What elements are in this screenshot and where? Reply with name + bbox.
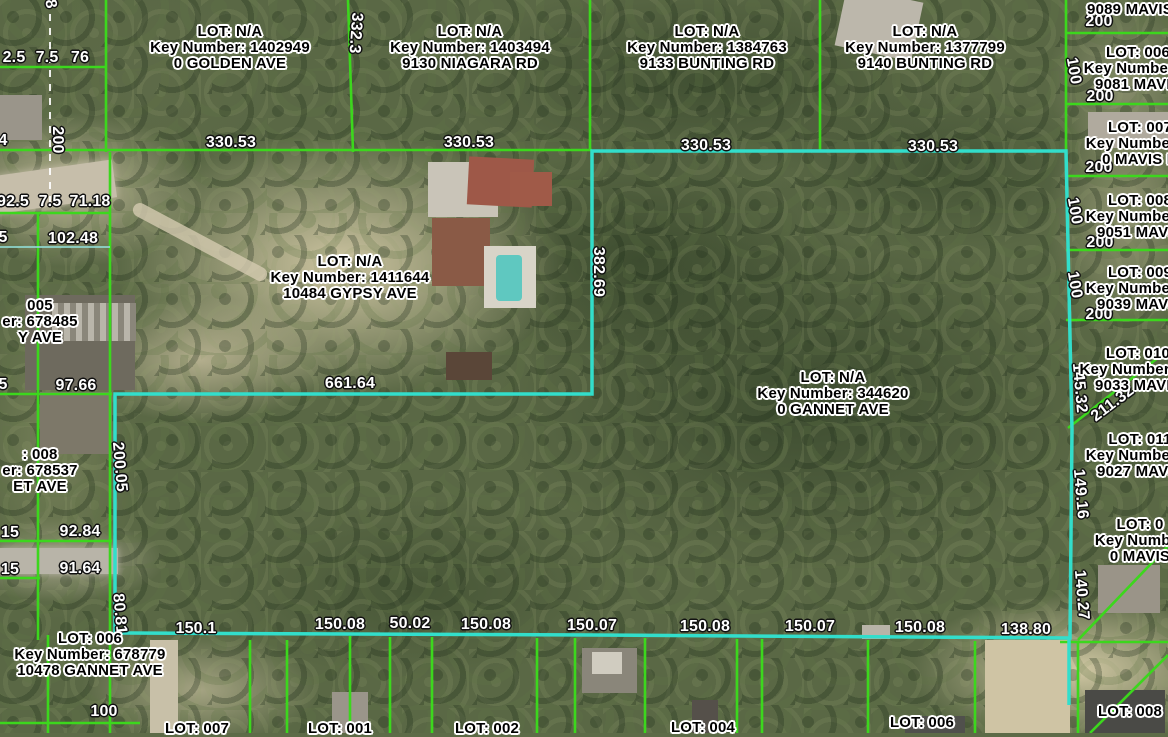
parcel-label-line: er: 678485 (2, 314, 77, 330)
parcel-label-line: 9051 MAVIS (1086, 225, 1168, 241)
parcel-label: LOT: 008 (1098, 704, 1162, 720)
parcel-label-line: 9039 MAVIS (1086, 297, 1168, 313)
parcel-label: LOT: 011 Key Number: 6 9027 MAVIS (1086, 432, 1168, 480)
parcel-label: LOT: 006 (890, 715, 954, 731)
parcel-label-line: LOT: 006 (890, 715, 954, 731)
parcel-info-labels: LOT: N/A Key Number: 1402949 0 GOLDEN AV… (0, 0, 1168, 733)
parcel-label-line: 0 GOLDEN AVE (150, 56, 310, 72)
parcel-label: 005 er: 678485 Y AVE (2, 298, 77, 346)
parcel-label-line: LOT: N/A (757, 370, 908, 386)
parcel-label-line: Key Number: 1411644 (271, 270, 430, 286)
parcel-label-line: LOT: N/A (390, 24, 550, 40)
parcel-label: LOT: 006 Key Number: 678779 10478 GANNET… (14, 631, 165, 679)
parcel-label-line: LOT: N/A (627, 24, 787, 40)
parcel-label-line: 9033 MAVIS (1079, 378, 1168, 394)
parcel-label-line: LOT: 008 (1098, 704, 1162, 720)
parcel-label: LOT: 009 Key Number: 6 9039 MAVIS (1086, 265, 1168, 313)
parcel-label-line: 0 MAVIS (1095, 549, 1168, 565)
parcel-label-line: 9130 NIAGARA RD (390, 56, 550, 72)
parcel-label: 9089 MAVIS (1087, 2, 1168, 18)
map-canvas[interactable]: 82.57.576332.32004330.53330.53330.53330.… (0, 0, 1168, 733)
parcel-label-line: LOT: 006 (1084, 45, 1168, 61)
parcel-label: LOT: N/A Key Number: 344620 0 GANNET AVE (757, 370, 908, 418)
parcel-label-line: Key Number: 6 (1086, 136, 1168, 152)
parcel-label-line: 9089 MAVIS (1087, 2, 1168, 18)
parcel-label-line: Y AVE (2, 330, 77, 346)
parcel-label: LOT: 001 (308, 721, 372, 737)
parcel-label-line: 0 MAVIS R (1086, 152, 1168, 168)
parcel-label: LOT: 002 (455, 721, 519, 737)
parcel-label-line: Key Number: 6 (1084, 61, 1168, 77)
parcel-label-line: 9133 BUNTING RD (627, 56, 787, 72)
parcel-label-line: LOT: 007 (1086, 120, 1168, 136)
parcel-label: : 008 er: 678537 ET AVE (2, 447, 77, 495)
parcel-label-line: Key Number: 68 (1079, 362, 1168, 378)
parcel-label-line: Key Number: 6 (1086, 281, 1168, 297)
parcel-label: LOT: 007 (165, 721, 229, 737)
parcel-label-line: : 008 (2, 447, 77, 463)
parcel-label-line: 005 (2, 298, 77, 314)
parcel-label: LOT: N/A Key Number: 1411644 10484 GYPSY… (271, 254, 430, 302)
parcel-label-line: 10484 GYPSY AVE (271, 286, 430, 302)
parcel-label: LOT: 004 (671, 720, 735, 736)
parcel-label-line: Key Number: 6 (1086, 448, 1168, 464)
parcel-label-line: LOT: 007 (165, 721, 229, 737)
parcel-label-line: LOT: N/A (845, 24, 1005, 40)
parcel-label-line: LOT: 002 (455, 721, 519, 737)
parcel-label: LOT: 006 Key Number: 6 9081 MAVIS (1084, 45, 1168, 93)
parcel-label-line: 9140 BUNTING RD (845, 56, 1005, 72)
parcel-label: LOT: 0 Key Number 0 MAVIS (1095, 517, 1168, 565)
parcel-label-line: Key Number: 1384763 (627, 40, 787, 56)
parcel-label-line: Key Number: 1402949 (150, 40, 310, 56)
parcel-label-line: LOT: 009 (1086, 265, 1168, 281)
parcel-label-line: ET AVE (2, 479, 77, 495)
parcel-label: LOT: 008 Key Number: 6 9051 MAVIS (1086, 193, 1168, 241)
parcel-label: LOT: N/A Key Number: 1377799 9140 BUNTIN… (845, 24, 1005, 72)
parcel-label: LOT: N/A Key Number: 1402949 0 GOLDEN AV… (150, 24, 310, 72)
parcel-label: LOT: 010 Key Number: 68 9033 MAVIS (1079, 346, 1168, 394)
parcel-label-line: er: 678537 (2, 463, 77, 479)
parcel-label-line: LOT: 001 (308, 721, 372, 737)
parcel-label-line: LOT: N/A (271, 254, 430, 270)
parcel-label-line: Key Number: 1377799 (845, 40, 1005, 56)
parcel-label-line: LOT: 011 (1086, 432, 1168, 448)
parcel-label-line: Key Number: 678779 (14, 647, 165, 663)
parcel-label-line: LOT: 0 (1095, 517, 1168, 533)
parcel-label: LOT: N/A Key Number: 1384763 9133 BUNTIN… (627, 24, 787, 72)
parcel-label-line: 10478 GANNET AVE (14, 663, 165, 679)
parcel-label-line: LOT: 010 (1079, 346, 1168, 362)
parcel-label-line: 0 GANNET AVE (757, 402, 908, 418)
parcel-label-line: Key Number: 6 (1086, 209, 1168, 225)
parcel-label-line: Key Number (1095, 533, 1168, 549)
parcel-label-line: LOT: N/A (150, 24, 310, 40)
parcel-label-line: 9081 MAVIS (1084, 77, 1168, 93)
parcel-label: LOT: N/A Key Number: 1403494 9130 NIAGAR… (390, 24, 550, 72)
parcel-label-line: Key Number: 1403494 (390, 40, 550, 56)
parcel-label-line: LOT: 004 (671, 720, 735, 736)
parcel-label-line: 9027 MAVIS (1086, 464, 1168, 480)
parcel-label-line: LOT: 008 (1086, 193, 1168, 209)
parcel-label-line: Key Number: 344620 (757, 386, 908, 402)
gis-parcel-map-view: { "map": { "colors": { "parcel_line": "#… (0, 0, 1168, 733)
parcel-label: LOT: 007 Key Number: 6 0 MAVIS R (1086, 120, 1168, 168)
parcel-label-line: LOT: 006 (14, 631, 165, 647)
